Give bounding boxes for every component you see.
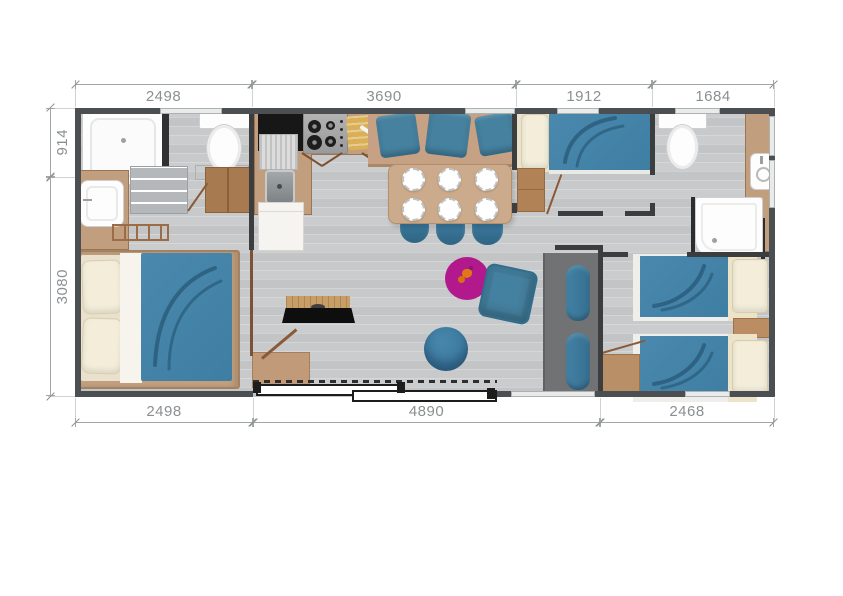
hob-knobs-icon (340, 120, 343, 123)
pillow-icon (732, 259, 768, 313)
sofa-cushion-icon (566, 333, 590, 390)
sliding-partition-icon (250, 250, 253, 356)
dim-bottom-2: 4890 (253, 403, 600, 427)
dim-top-2: 3690 (252, 84, 516, 108)
dim-label: 2498 (75, 88, 252, 105)
towel-ladder-icon (112, 224, 169, 241)
interior-wall (558, 211, 603, 216)
rug-figure-icon (458, 276, 465, 283)
bed-swoosh-icon (640, 256, 728, 317)
window-icon (465, 108, 515, 114)
extension-line (774, 398, 775, 422)
interior-wall (555, 245, 603, 250)
bed-swoosh-icon (640, 336, 728, 394)
extension-line (774, 85, 775, 107)
sliding-door-stop (397, 382, 405, 393)
interior-wall (512, 203, 517, 213)
sliding-door-stop (253, 382, 261, 393)
dim-left-2: 3080 (46, 177, 72, 396)
dim-label: 2468 (600, 403, 774, 420)
bench-cushion-icon (375, 111, 420, 158)
window-icon (685, 391, 730, 397)
window-icon (511, 391, 595, 397)
sliding-door-stop (487, 388, 495, 399)
pillow-icon (732, 340, 768, 394)
hob-icon (303, 113, 348, 154)
twin-bed-duvet-icon (640, 336, 728, 394)
interior-wall (650, 108, 655, 175)
dim-label: 3690 (252, 88, 516, 105)
tv-icon (282, 308, 355, 323)
dim-label: 3080 (54, 269, 71, 304)
bed-sheet-icon (120, 253, 142, 383)
washbasin-icon (80, 180, 124, 227)
window-icon (160, 108, 222, 114)
sliding-door-track-icon (253, 380, 497, 383)
dining-table-icon (388, 164, 512, 224)
bench-cushion-icon (424, 110, 471, 159)
fridge-icon (258, 202, 304, 251)
corner-unit-icon (602, 354, 640, 394)
door-swing-line (546, 174, 562, 214)
bed-swoosh-icon (141, 253, 232, 381)
wardrobe-icon (205, 167, 252, 213)
dim-top-1: 2498 (75, 84, 252, 108)
dim-label: 914 (54, 129, 71, 156)
window-icon (675, 108, 720, 114)
bed-duvet-icon (141, 253, 232, 381)
floorplan-canvas: 2498 3690 1912 1684 2498 4890 2468 (0, 0, 843, 596)
dim-label: 1912 (516, 88, 652, 105)
dim-top-4: 1684 (652, 84, 774, 108)
dim-top-3: 1912 (516, 84, 652, 108)
shelf-unit-icon (130, 166, 188, 214)
interior-wall (598, 245, 603, 397)
sink-drainer-icon (259, 134, 298, 170)
kitchen-sink-icon (265, 170, 295, 204)
bed-duvet-icon (549, 110, 651, 174)
floorplan (75, 108, 775, 397)
dim-label: 1684 (652, 88, 774, 105)
pillow-icon (81, 259, 123, 314)
dim-label: 2498 (75, 403, 253, 420)
pouf-icon (424, 327, 468, 371)
dim-bottom-3: 2468 (600, 403, 774, 427)
dim-label: 4890 (253, 403, 600, 420)
window-icon (769, 160, 775, 208)
twin-bed-duvet-icon (640, 256, 728, 317)
interior-wall (249, 108, 254, 250)
pillow-icon (81, 317, 123, 374)
shower-tray-icon (695, 197, 763, 258)
sliding-door-panel-icon (352, 390, 497, 402)
bed-swoosh-icon (549, 110, 651, 174)
interior-wall (598, 252, 628, 257)
sofa-icon (543, 253, 602, 393)
interior-wall (625, 211, 652, 216)
rug-figure-icon (469, 266, 473, 270)
window-icon (557, 108, 599, 114)
low-wardrobe-icon (517, 168, 545, 212)
dim-left-1: 914 (46, 108, 72, 177)
interior-wall (687, 252, 775, 257)
extension-line (48, 396, 75, 397)
pillow-icon (521, 114, 549, 170)
bed-edge (549, 170, 651, 174)
interior-wall (512, 108, 517, 170)
outer-wall-left (75, 108, 81, 397)
dim-bottom-1: 2498 (75, 403, 253, 427)
interior-wall (650, 203, 655, 216)
sofa-cushion-icon (566, 265, 590, 321)
floor-cushion-icon (477, 262, 539, 326)
window-icon (769, 116, 775, 156)
